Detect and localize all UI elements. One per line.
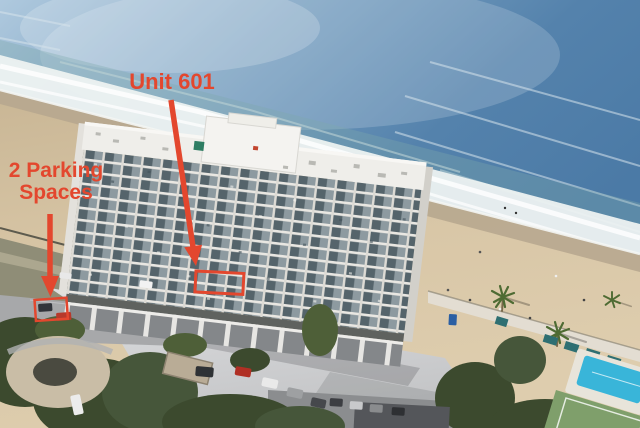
parked-car [38, 303, 53, 312]
parked-car [329, 398, 343, 407]
parked-car [349, 401, 363, 410]
parked-car [369, 404, 383, 413]
photo-scene [0, 0, 640, 428]
parked-car [391, 407, 405, 416]
rooftop-green-equipment [193, 141, 204, 151]
parking-spaces-label-line2: Spaces [2, 182, 110, 204]
parking-spaces-label-line1: 2 Parking [2, 160, 110, 182]
blue-dumpster [448, 314, 457, 325]
parked-suv [195, 366, 214, 378]
unit-601-label: Unit 601 [126, 71, 218, 93]
parking-spaces-label: 2 Parking Spaces [2, 160, 110, 204]
aerial-listing-photo: Unit 601 2 Parking Spaces [0, 0, 640, 428]
